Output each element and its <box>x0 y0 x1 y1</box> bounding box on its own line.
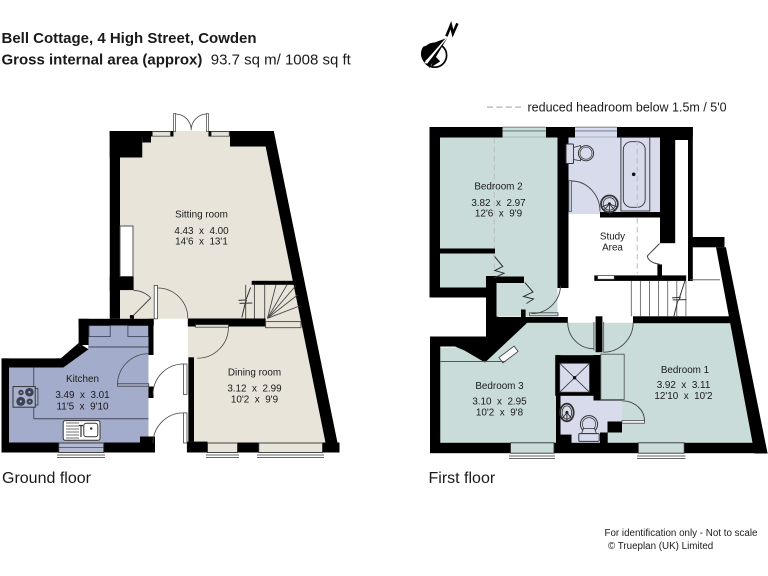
svg-text:3.12 x 2.99: 3.12 x 2.99 <box>227 384 282 395</box>
svg-text:Area: Area <box>602 242 623 253</box>
svg-text:3.49 x 3.01: 3.49 x 3.01 <box>55 390 110 401</box>
svg-text:3.92 x 3.11: 3.92 x 3.11 <box>657 380 711 391</box>
svg-text:12'10 x 10'2: 12'10 x 10'2 <box>654 391 712 402</box>
svg-text:Ground floor: Ground floor <box>2 470 92 487</box>
svg-text:© Trueplan (UK) Limited: © Trueplan (UK) Limited <box>608 541 713 552</box>
svg-text:Study: Study <box>600 232 625 243</box>
svg-text:Gross internal area (approx): Gross internal area (approx) 93.7 sq m/ … <box>2 52 352 69</box>
svg-text:14'6 x 13'1: 14'6 x 13'1 <box>175 236 228 247</box>
svg-text:Bedroom 2: Bedroom 2 <box>474 182 522 193</box>
svg-text:reduced headroom below 1.5m /: reduced headroom below 1.5m / 5'0 <box>528 100 727 114</box>
svg-text:10'2 x 9'8: 10'2 x 9'8 <box>476 407 524 418</box>
svg-text:Bell Cottage, 4 High Street, C: Bell Cottage, 4 High Street, Cowden <box>2 30 257 47</box>
svg-text:For identification only - Not: For identification only - Not to scale <box>604 528 758 539</box>
svg-text:Bedroom 3: Bedroom 3 <box>475 381 524 392</box>
svg-text:3.10 x 2.95: 3.10 x 2.95 <box>472 396 527 407</box>
svg-text:Kitchen: Kitchen <box>66 374 99 385</box>
svg-text:Dining room: Dining room <box>228 368 281 379</box>
svg-text:First floor: First floor <box>429 470 496 487</box>
svg-text:10'2 x 9'9: 10'2 x 9'9 <box>231 395 279 406</box>
svg-text:12'6 x 9'9: 12'6 x 9'9 <box>475 209 523 220</box>
svg-text:11'5 x 9'10: 11'5 x 9'10 <box>57 402 109 413</box>
svg-text:3.82 x 2.97: 3.82 x 2.97 <box>471 198 525 209</box>
svg-text:Sitting room: Sitting room <box>175 210 228 221</box>
svg-text:Bedroom 1: Bedroom 1 <box>661 365 710 376</box>
